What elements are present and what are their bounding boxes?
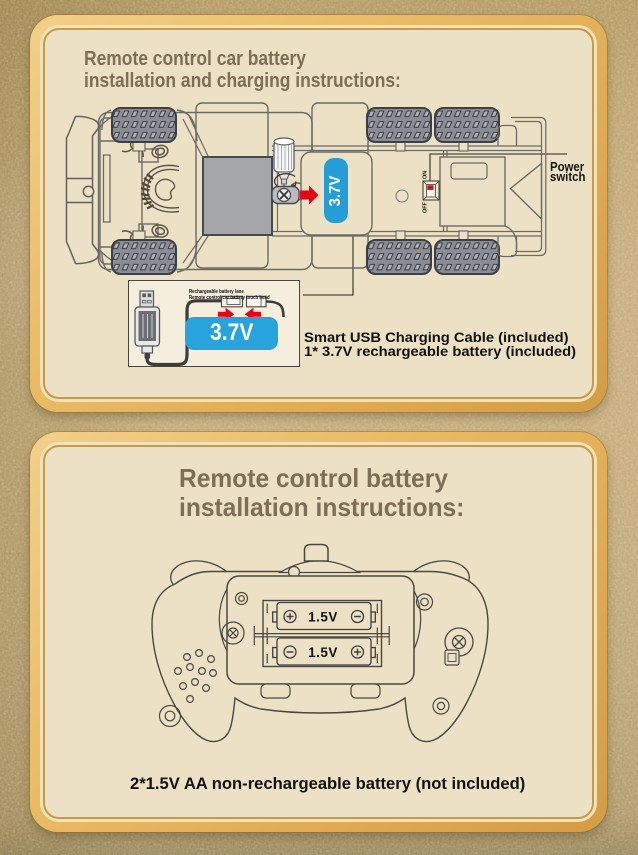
svg-text:ON: ON [423, 171, 429, 179]
svg-text:1.5V: 1.5V [308, 610, 338, 625]
svg-text:1.5V: 1.5V [308, 645, 338, 660]
svg-text:OFF: OFF [423, 202, 429, 213]
